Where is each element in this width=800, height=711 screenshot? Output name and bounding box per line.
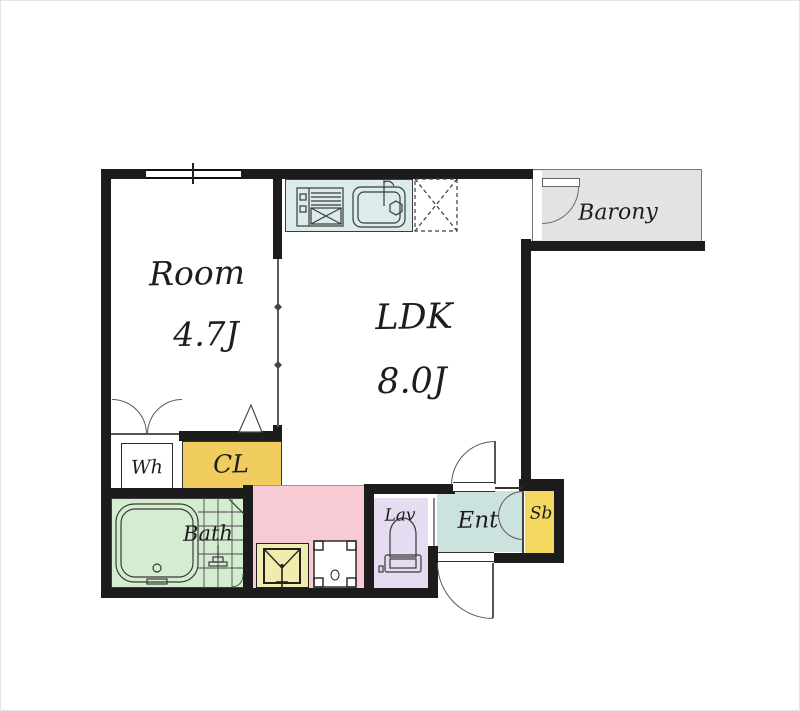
bath-label: Bath (183, 523, 233, 545)
room-label: Room (149, 256, 245, 291)
closet-door-triangle (239, 405, 262, 432)
entrance-label: Ent (457, 509, 498, 533)
toilet-icon (379, 518, 421, 572)
closet-label: CL (213, 451, 249, 477)
floor-plan: Room 4.7J LDK 8.0J Barony Wh CL Bath Lav… (0, 0, 800, 711)
balcony-label: Barony (578, 201, 658, 224)
water-heater-label: Wh (131, 458, 163, 478)
refrigerator-icon (415, 179, 457, 231)
sink-icon (353, 179, 405, 227)
ldk-size: 8.0J (377, 364, 447, 400)
washer-space-icon (314, 541, 356, 587)
lavatory-label: Lav (384, 507, 415, 525)
stove-icon (297, 188, 343, 226)
washer-pan-icon (264, 549, 300, 588)
fixture-layer (1, 1, 800, 711)
ldk-label: LDK (375, 300, 453, 336)
room-size: 4.7J (173, 317, 239, 351)
shoe-box-label: Sb (530, 505, 553, 522)
partition-ticks (274, 303, 282, 369)
